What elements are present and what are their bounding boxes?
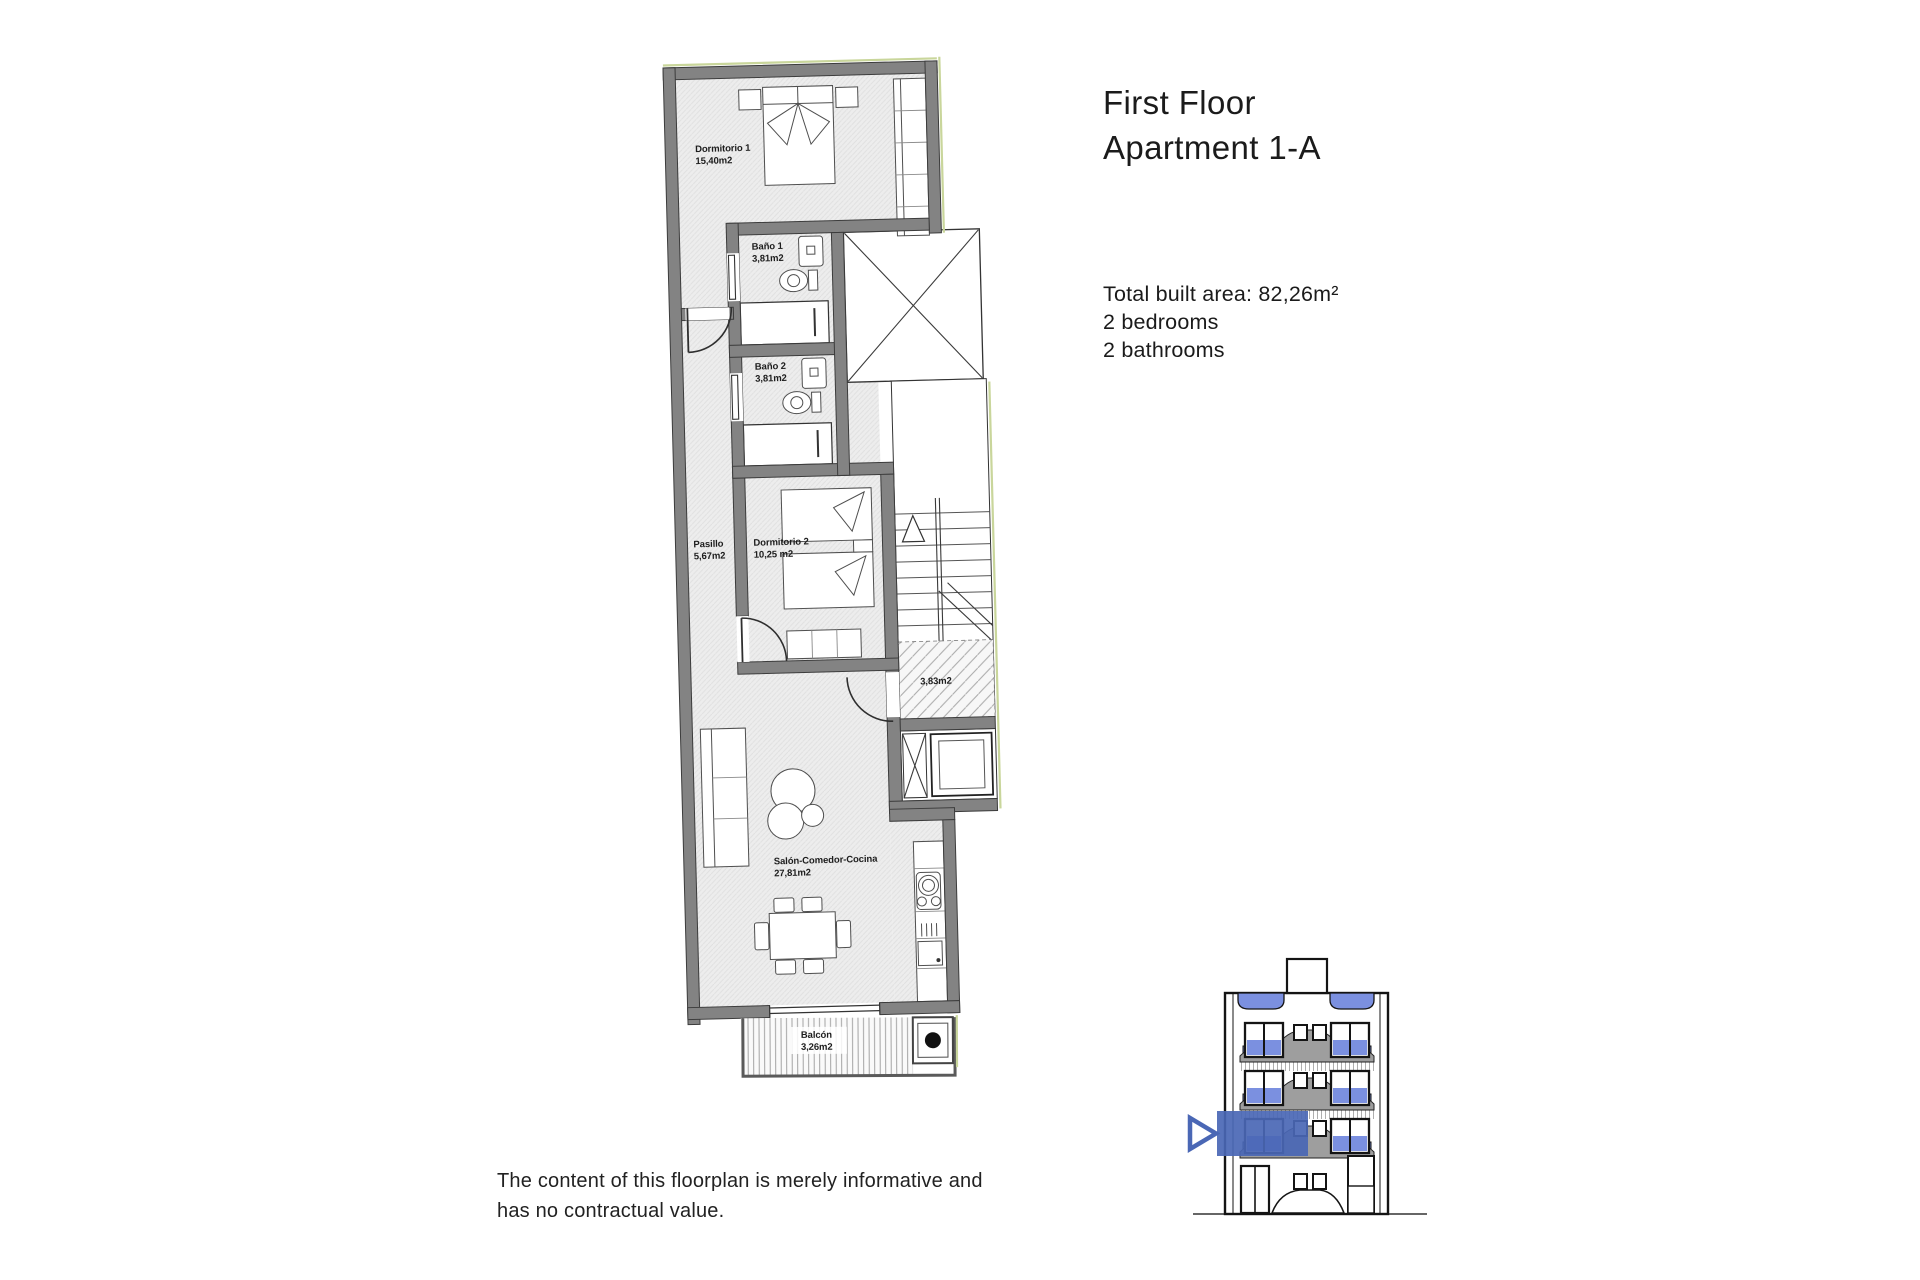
single-bed-2: [783, 552, 874, 609]
kitchen-counter: [913, 841, 947, 1002]
kitchen-sink: [916, 872, 941, 910]
built-area-text: Total built area: 82,26m²: [1103, 280, 1339, 308]
disclaimer-line-2: has no contractual value.: [497, 1196, 983, 1226]
bedrooms-text: 2 bedrooms: [1103, 308, 1339, 336]
room-label-dormitorio-2: Dormitorio 2: [753, 536, 809, 548]
door-bano-2: [730, 373, 743, 421]
room-label-bano-2-area: 3,81m2: [755, 373, 787, 385]
room-label-pasillo: Pasillo: [693, 539, 723, 551]
attic-glass-right: [1330, 993, 1374, 1009]
stairwell-void: [843, 229, 983, 383]
room-label-salon-area: 27,81m2: [774, 867, 811, 879]
room-label-balcon-area: 3,26m2: [801, 1042, 833, 1053]
title-line-1: First Floor: [1103, 80, 1321, 125]
sink-bano-2: [802, 358, 827, 389]
apartment-summary: Total built area: 82,26m² 2 bedrooms 2 b…: [1103, 280, 1339, 364]
disclaimer-line-1: The content of this floorplan is merely …: [497, 1166, 983, 1196]
floorplan-page: 3,83m2: [0, 0, 1920, 1280]
building-elevation: [1190, 959, 1427, 1214]
floorplan-drawing: 3,83m2: [0, 0, 1920, 1280]
room-label-dormitorio-1-area: 15,40m2: [695, 155, 732, 167]
nightstand-dormitorio-2: [853, 540, 872, 552]
shower-bano-1: [740, 301, 829, 345]
sink-bano-1: [798, 236, 823, 267]
nightstand-right: [836, 87, 859, 108]
kitchen-oven: [918, 941, 943, 966]
wardrobe-dormitorio-2: [787, 629, 862, 659]
bathrooms-text: 2 bathrooms: [1103, 336, 1339, 364]
toilet-bano-2: [783, 391, 822, 414]
room-label-landing-area: 3,83m2: [920, 676, 952, 688]
floor-indicator-arrow: [1190, 1118, 1216, 1149]
door-bano-1: [727, 253, 740, 301]
page-title: First Floor Apartment 1-A: [1103, 80, 1321, 170]
room-label-dormitorio-2-area: 10,25 m2: [754, 549, 794, 561]
sofa: [700, 728, 749, 867]
double-bed: [763, 86, 836, 186]
landing-area: 3,83m2: [898, 640, 995, 719]
apartment-plan: 3,83m2: [663, 56, 1008, 1082]
washing-machine: [913, 1017, 953, 1063]
room-label-pasillo-area: 5,67m2: [694, 551, 726, 563]
floor-band-3: [1240, 1023, 1374, 1071]
shower-bano-2: [743, 423, 832, 466]
room-label-balcon: Balcón: [801, 1030, 832, 1041]
disclaimer-text: The content of this floorplan is merely …: [497, 1166, 983, 1226]
single-bed-1: [781, 488, 872, 542]
roof-stub: [1287, 959, 1327, 993]
room-label-bano-1-area: 3,81m2: [752, 253, 784, 265]
room-label-dormitorio-1: Dormitorio 1: [695, 143, 751, 155]
nightstand-left: [739, 89, 762, 110]
title-line-2: Apartment 1-A: [1103, 125, 1321, 170]
wardrobe-dormitorio-1: [893, 78, 929, 236]
elevator: [900, 729, 997, 801]
current-floor-highlight: [1217, 1111, 1308, 1156]
balcony: Balcón 3,26m2: [741, 1015, 957, 1076]
attic-glass-left: [1238, 993, 1284, 1009]
room-label-bano-2: Baño 2: [755, 361, 786, 373]
toilet-bano-1: [779, 269, 818, 292]
room-label-bano-1: Baño 1: [752, 241, 784, 253]
